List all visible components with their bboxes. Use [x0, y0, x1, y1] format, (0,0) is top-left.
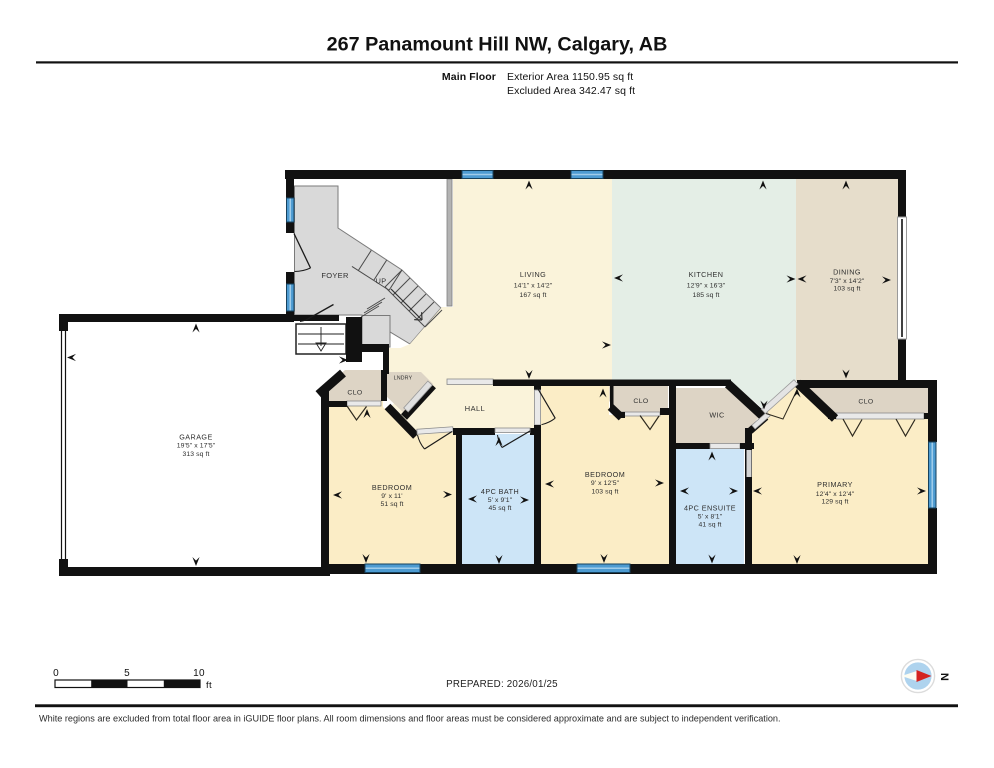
- svg-text:PRIMARY: PRIMARY: [817, 480, 853, 489]
- svg-text:41 sq ft: 41 sq ft: [698, 522, 721, 529]
- svg-text:313 sq ft: 313 sq ft: [183, 451, 210, 458]
- svg-text:12'9" x 16'3": 12'9" x 16'3": [687, 283, 726, 290]
- svg-text:DINING: DINING: [833, 268, 861, 277]
- svg-text:KITCHEN: KITCHEN: [689, 270, 724, 279]
- svg-text:CLO: CLO: [633, 398, 648, 405]
- svg-text:FOYER: FOYER: [321, 271, 349, 280]
- svg-text:Excluded Area 342.47 sq ft: Excluded Area 342.47 sq ft: [507, 85, 635, 97]
- svg-text:Exterior Area 1150.95 sq ft: Exterior Area 1150.95 sq ft: [507, 71, 633, 83]
- svg-text:BEDROOM: BEDROOM: [372, 483, 412, 492]
- svg-text:19'5" x 17'5": 19'5" x 17'5": [177, 443, 216, 450]
- svg-text:5: 5: [124, 668, 130, 679]
- svg-text:10: 10: [193, 668, 205, 679]
- svg-text:51 sq ft: 51 sq ft: [380, 501, 403, 508]
- svg-text:103 sq ft: 103 sq ft: [592, 489, 619, 496]
- svg-text:5' x 9'1": 5' x 9'1": [488, 497, 513, 504]
- svg-text:14'1" x 14'2": 14'1" x 14'2": [514, 283, 553, 290]
- svg-text:0: 0: [53, 668, 59, 679]
- svg-text:PREPARED: 2026/01/25: PREPARED: 2026/01/25: [446, 679, 558, 690]
- svg-text:167 sq ft: 167 sq ft: [520, 292, 547, 299]
- svg-text:5' x 8'1": 5' x 8'1": [698, 514, 723, 521]
- svg-text:White regions are excluded fro: White regions are excluded from total fl…: [39, 714, 781, 724]
- svg-text:GARAGE: GARAGE: [179, 433, 212, 442]
- svg-text:LNDRY: LNDRY: [394, 375, 413, 381]
- svg-text:129 sq ft: 129 sq ft: [822, 499, 849, 506]
- svg-text:UP: UP: [376, 277, 387, 286]
- svg-text:WIC: WIC: [709, 410, 724, 419]
- svg-text:Main Floor: Main Floor: [442, 71, 496, 83]
- svg-text:45 sq ft: 45 sq ft: [488, 505, 511, 512]
- svg-text:N: N: [938, 673, 950, 681]
- svg-text:4PC ENSUITE: 4PC ENSUITE: [684, 504, 736, 513]
- svg-text:7'3" x 14'2": 7'3" x 14'2": [830, 278, 865, 285]
- svg-text:CLO: CLO: [858, 399, 873, 406]
- svg-text:CLO: CLO: [347, 390, 362, 397]
- svg-text:12'4" x 12'4": 12'4" x 12'4": [816, 491, 855, 498]
- svg-text:185 sq ft: 185 sq ft: [693, 292, 720, 299]
- svg-text:9' x 11': 9' x 11': [381, 493, 402, 500]
- svg-text:BEDROOM: BEDROOM: [585, 470, 625, 479]
- svg-text:HALL: HALL: [465, 404, 486, 413]
- svg-text:ft: ft: [206, 680, 212, 691]
- svg-text:267 Panamount Hill NW, Calgary: 267 Panamount Hill NW, Calgary, AB: [327, 33, 668, 55]
- svg-text:4PC BATH: 4PC BATH: [481, 487, 519, 496]
- svg-text:103 sq ft: 103 sq ft: [834, 286, 861, 293]
- svg-text:9' x 12'5": 9' x 12'5": [591, 480, 620, 487]
- svg-text:LIVING: LIVING: [520, 270, 546, 279]
